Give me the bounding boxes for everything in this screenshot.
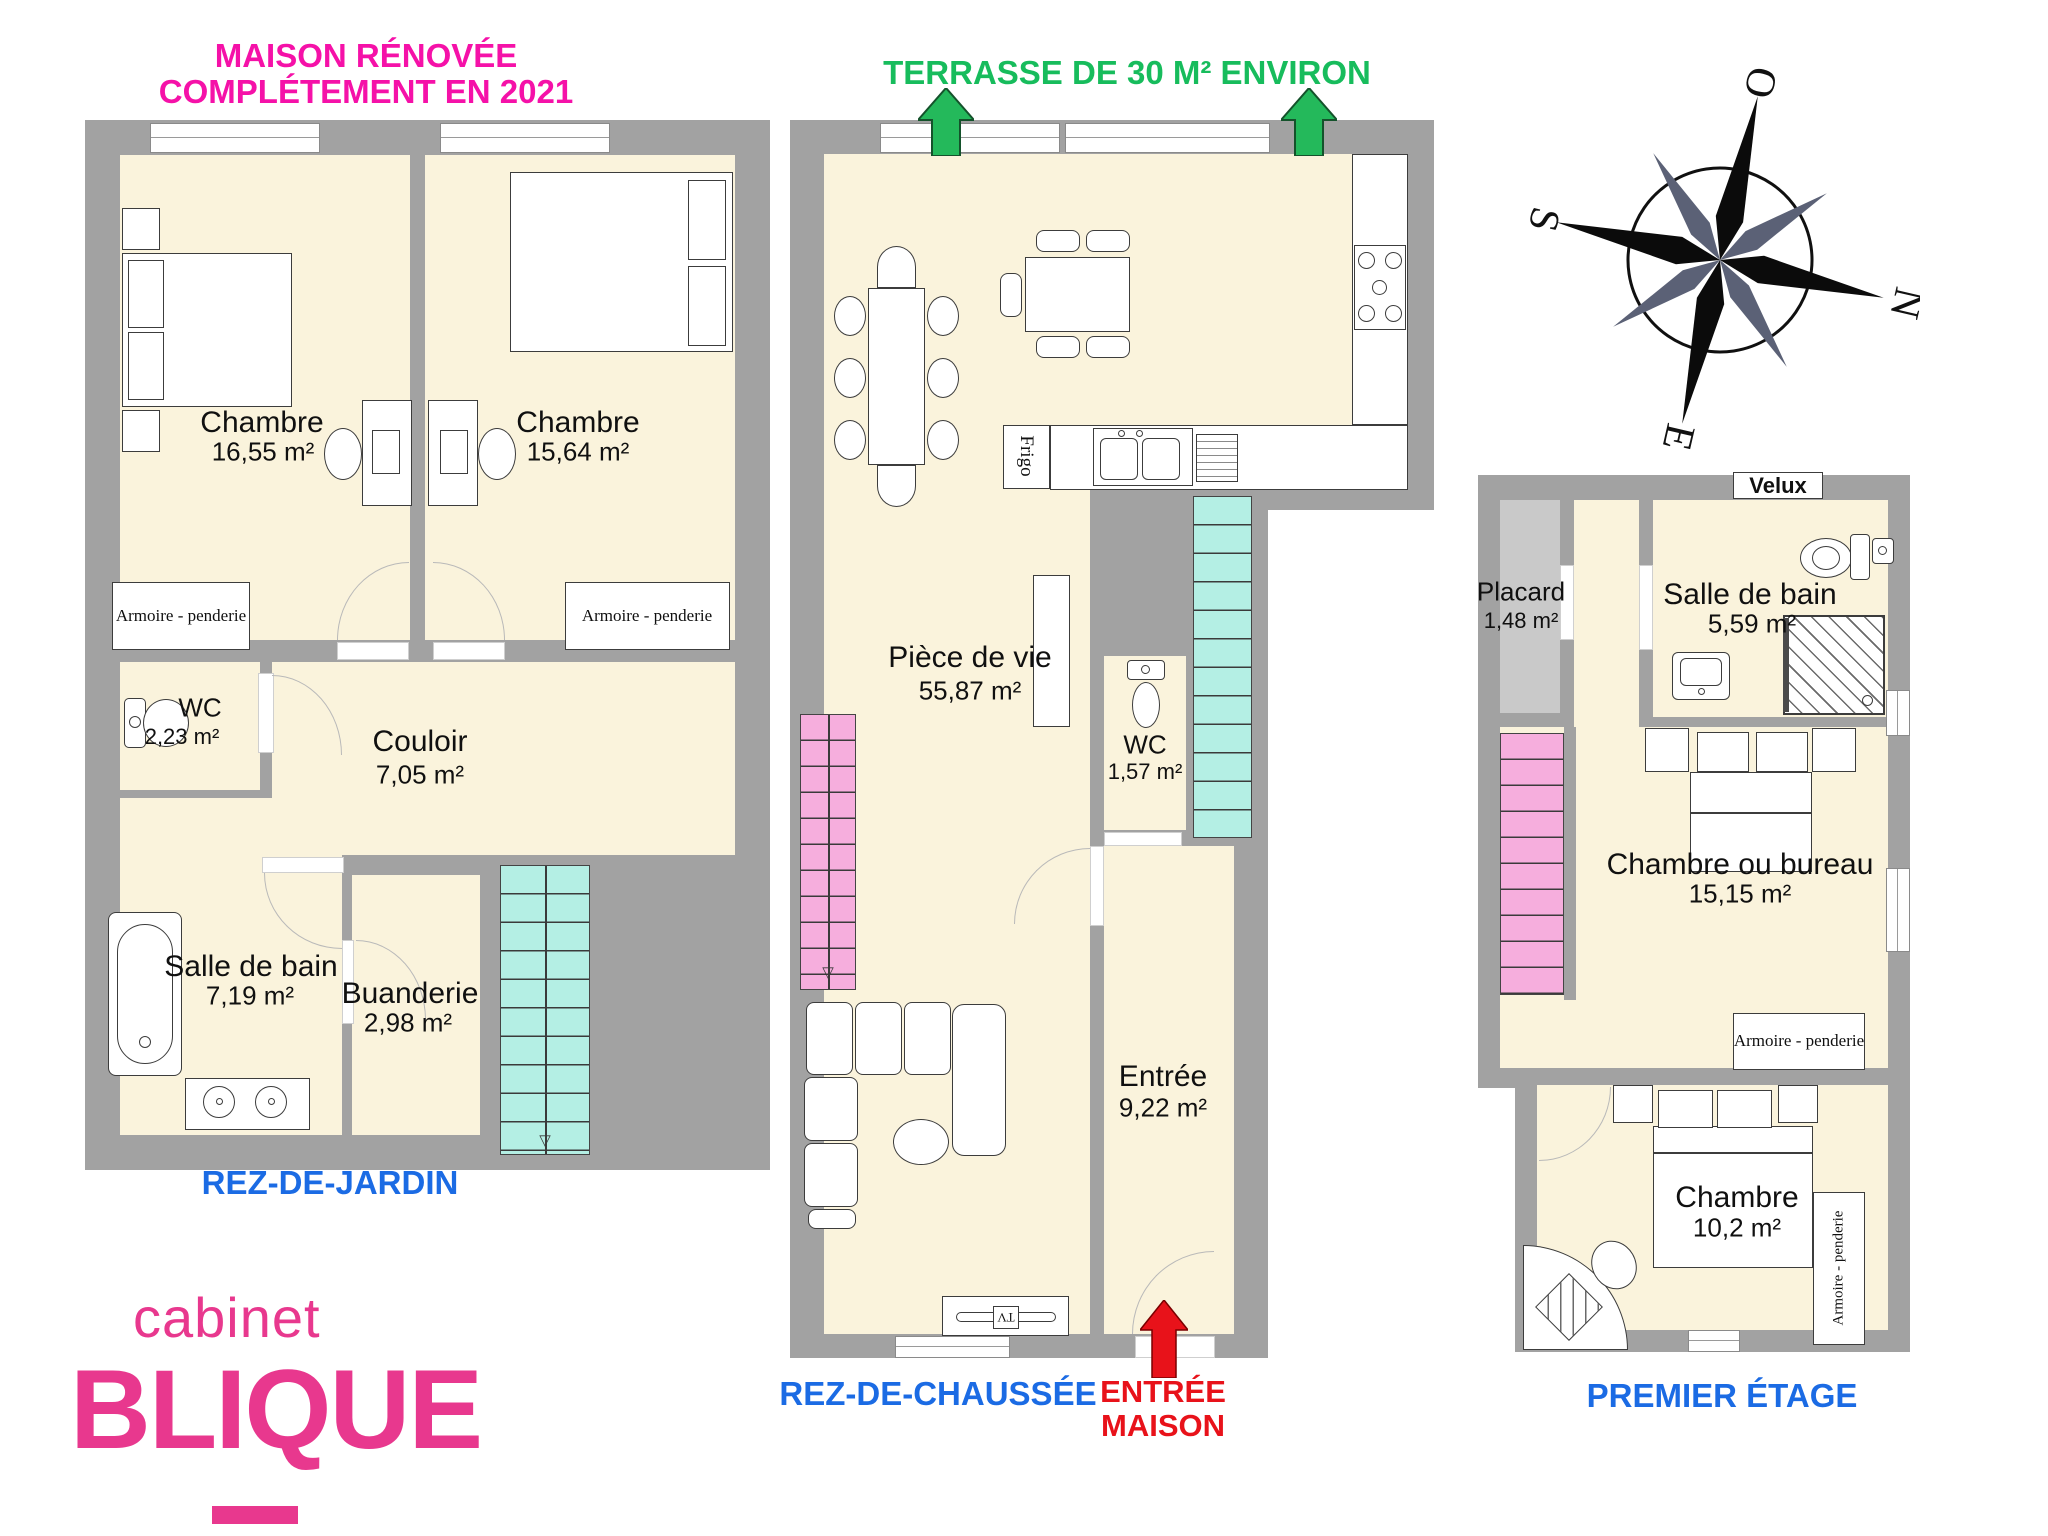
compass-east-label: E	[1653, 419, 1704, 454]
dining-chair	[927, 420, 959, 460]
closet-label: Armoire - penderie	[1734, 1031, 1864, 1051]
garden-window-left	[150, 123, 320, 153]
room-label-bedroom2: Chambre	[516, 406, 639, 440]
garden-stairs-teal	[500, 865, 590, 1155]
ground-stairs-pink	[800, 714, 856, 990]
tv-label: TV	[997, 1309, 1014, 1325]
dining-table	[868, 288, 925, 465]
room-label-wc: WC	[1123, 730, 1166, 761]
bathroom-sink-inner	[1680, 658, 1722, 686]
laptop-icon	[440, 430, 468, 474]
burner-center-icon	[1372, 280, 1387, 295]
first-right-window	[1886, 690, 1910, 736]
terrace-arrow-icon	[1281, 88, 1337, 156]
stair-down-arrow-icon: ▽	[822, 963, 834, 981]
room-area-living: 55,87 m²	[919, 676, 1022, 707]
sofa-cushion	[855, 1002, 902, 1075]
nightstand	[1613, 1085, 1653, 1123]
flush-button-icon	[1878, 546, 1887, 555]
pillow	[1658, 1090, 1713, 1128]
k-chair	[1086, 230, 1130, 252]
first-stair-wall	[1564, 727, 1576, 1000]
room-area-first-bathroom: 5,59 m²	[1708, 609, 1796, 640]
stair-rail	[828, 715, 830, 989]
pillow	[688, 180, 726, 260]
nightstand	[1778, 1085, 1818, 1123]
pillow	[128, 260, 164, 328]
renovation-title-line2: COMPLÉTEMENT EN 2021	[159, 73, 573, 111]
compass-rose: N E S O	[1520, 60, 1920, 460]
dining-chair	[927, 358, 959, 398]
sofa-cushion	[804, 1143, 858, 1207]
shower-drain-icon	[1862, 695, 1873, 706]
floorplan-canvas: MAISON RÉNOVÉE COMPLÉTEMENT EN 2021 TERR…	[0, 0, 2048, 1536]
sofa-ottoman	[808, 1209, 856, 1229]
floor-label-garden: REZ-DE-JARDIN	[202, 1164, 459, 1202]
logo-text-blique: BLIQUE	[70, 1345, 481, 1474]
terrace-arrow-icon	[918, 88, 974, 156]
burner-icon	[1358, 305, 1375, 322]
desk-chair	[324, 428, 362, 480]
garden-bathroom-door-leaf	[262, 857, 344, 873]
pillow	[1756, 732, 1808, 772]
bathtub-drain-icon	[139, 1036, 151, 1048]
dining-chair	[834, 358, 866, 398]
entrance-label-line2: MAISON	[1101, 1408, 1225, 1444]
faucet-icon	[1118, 430, 1125, 437]
garden-window-right	[440, 123, 610, 153]
toilet-tank-icon	[1850, 534, 1870, 580]
ground-entry-door-leaf	[1090, 846, 1104, 926]
dining-chair	[877, 246, 916, 288]
compass-north-label: N	[1880, 283, 1920, 323]
faucet-icon	[1698, 688, 1705, 695]
closet-label: Armoire - penderie	[1831, 1211, 1848, 1326]
room-label-wc: WC	[178, 693, 221, 724]
toilet-bowl-inner-icon	[1812, 546, 1840, 570]
bed-fold-line	[1690, 812, 1812, 814]
room-area-placard: 1,48 m²	[1484, 608, 1559, 634]
room-area-laundry: 2,98 m²	[364, 1008, 452, 1039]
room-area-wc: 2,23 m²	[145, 724, 220, 750]
garden-door-leaf	[337, 642, 409, 660]
faucet-icon	[268, 1098, 275, 1105]
sofa-chaise	[952, 1004, 1006, 1156]
room-area-wc: 1,57 m²	[1108, 759, 1183, 785]
renovation-title-line1: MAISON RÉNOVÉE	[215, 37, 518, 75]
burner-icon	[1385, 252, 1402, 269]
toilet-button-icon	[1141, 665, 1150, 674]
first-bathroom-door-leaf	[1639, 565, 1653, 650]
stair-down-arrow-icon: ▽	[539, 1131, 551, 1149]
garden-door-leaf	[433, 642, 505, 660]
terrace-title: TERRASSE DE 30 M² ENVIRON	[883, 54, 1371, 92]
kitchen-table	[1025, 257, 1130, 332]
coffee-table	[893, 1119, 949, 1165]
floor-label-ground: REZ-DE-CHAUSSÉE	[779, 1375, 1096, 1413]
burner-icon	[1358, 252, 1375, 269]
room-area-bedroom1: 16,55 m²	[212, 437, 315, 468]
room-label-hallway: Couloir	[372, 725, 467, 759]
ground-bottom-window	[895, 1336, 1010, 1358]
dining-chair	[927, 296, 959, 336]
pillow	[1697, 732, 1749, 772]
sink-basin-icon	[1100, 438, 1138, 480]
room-label-first-bathroom: Salle de bain	[1663, 578, 1836, 612]
pillow	[128, 332, 164, 400]
room-label-entry: Entrée	[1119, 1060, 1207, 1094]
floor-label-first: PREMIER ÉTAGE	[1587, 1377, 1858, 1415]
k-chair	[1086, 336, 1130, 358]
sofa-cushion	[904, 1002, 951, 1075]
nightstand	[1645, 728, 1689, 772]
faucet-icon	[216, 1098, 223, 1105]
velux-label: Velux	[1749, 473, 1806, 499]
fridge-label: Frigo	[1015, 435, 1037, 476]
pillow	[1717, 1090, 1772, 1128]
room-label-laundry: Buanderie	[342, 977, 479, 1011]
k-chair	[1000, 273, 1022, 317]
nightstand	[122, 410, 160, 452]
nightstand	[122, 208, 160, 250]
ground-wc-door-leaf	[1104, 832, 1182, 846]
desk-chair	[478, 428, 516, 480]
dining-chair	[834, 420, 866, 460]
bed-fold-line	[1653, 1152, 1813, 1154]
closet-label: Armoire - penderie	[582, 606, 712, 626]
entrance-label-line1: ENTRÉE	[1100, 1374, 1226, 1410]
logo-text-cabinet: cabinet	[133, 1285, 321, 1350]
dining-chair	[834, 296, 866, 336]
room-label-bedroom-office: Chambre ou bureau	[1607, 848, 1874, 882]
sofa-cushion	[804, 1077, 858, 1141]
stair-rail	[545, 866, 547, 1154]
ground-stairs-teal	[1193, 496, 1252, 838]
k-chair	[1036, 336, 1080, 358]
first-bottom-window	[1688, 1330, 1740, 1352]
laptop-icon	[372, 430, 400, 474]
sink-basin-icon	[1142, 438, 1180, 480]
sofa-cushion	[806, 1002, 853, 1075]
first-stairs-pink	[1500, 733, 1564, 995]
k-chair	[1036, 230, 1080, 252]
toilet-button-icon	[129, 716, 141, 728]
room-area-hallway: 7,05 m²	[376, 760, 464, 791]
room-label-living: Pièce de vie	[888, 641, 1051, 675]
room-label-placard: Placard	[1477, 577, 1565, 608]
room-label-bathroom: Salle de bain	[164, 950, 337, 984]
room-label-first-bedroom: Chambre	[1675, 1181, 1798, 1215]
dining-chair	[877, 465, 916, 507]
logo-underline	[212, 1506, 298, 1524]
compass-west-label: O	[1734, 62, 1786, 102]
room-label-bedroom1: Chambre	[200, 406, 323, 440]
room-area-bedroom2: 15,64 m²	[527, 437, 630, 468]
burner-icon	[1385, 305, 1402, 322]
entrance-arrow-icon	[1140, 1300, 1188, 1378]
pillow	[688, 266, 726, 346]
drainboard-icon	[1196, 434, 1238, 482]
compass-south-label: S	[1520, 203, 1569, 236]
first-right-window	[1886, 868, 1910, 952]
room-area-first-bedroom: 10,2 m²	[1693, 1213, 1781, 1244]
nightstand	[1812, 728, 1856, 772]
ground-terrace-window	[1065, 123, 1270, 153]
room-area-entry: 9,22 m²	[1119, 1093, 1207, 1124]
room-area-bathroom: 7,19 m²	[206, 981, 294, 1012]
toilet-bowl-icon	[1132, 682, 1160, 728]
closet-label: Armoire - penderie	[116, 606, 246, 626]
room-area-bedroom-office: 15,15 m²	[1689, 879, 1792, 910]
first-corridor-floor	[1574, 500, 1639, 727]
faucet-icon	[1136, 430, 1143, 437]
